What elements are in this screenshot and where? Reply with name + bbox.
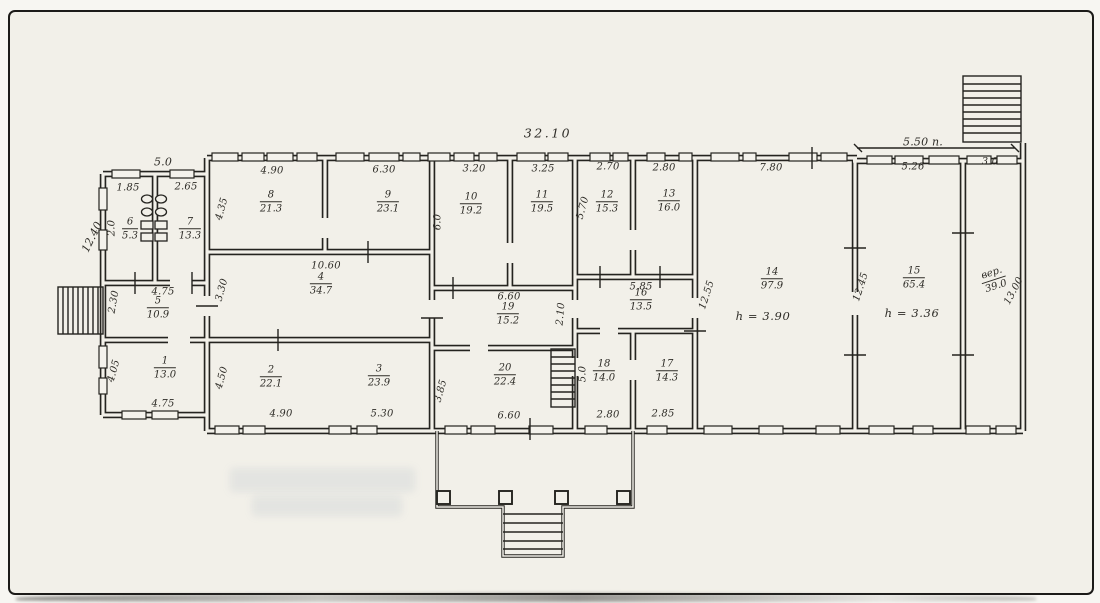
porch-wall: [437, 431, 633, 556]
window: [99, 188, 107, 210]
room-number: 19: [497, 301, 519, 314]
toilet-icon: [142, 208, 153, 216]
room-area: 21.3: [260, 202, 282, 215]
scan-shadow: [16, 593, 1036, 602]
room-number: 2: [260, 364, 282, 377]
window: [789, 153, 817, 161]
room-number: 17: [656, 358, 678, 371]
window: [711, 153, 739, 161]
room-label-11: 1119.5: [531, 189, 553, 215]
window: [369, 153, 399, 161]
room-number: 14: [761, 266, 783, 279]
room-area: 14.3: [656, 371, 678, 384]
window: [529, 426, 553, 434]
room-area: 13.0: [154, 368, 176, 381]
floor-plan-scan: 32.10 5.0 5.50 п. 1.85 2.65 4.90 6.30 3.…: [0, 0, 1100, 603]
dim-2-85: 2.85: [651, 409, 674, 420]
window: [403, 153, 420, 161]
porch-column: [555, 491, 568, 504]
dim-4-75-bottom: 4.75: [151, 399, 174, 410]
window: [152, 411, 178, 419]
dim-2-10: 2.10: [555, 302, 568, 326]
room-area: 23.1: [377, 202, 399, 215]
room-area: 5.3: [122, 229, 138, 242]
room-area: 14.0: [593, 371, 615, 384]
window: [122, 411, 146, 419]
room-label-17: 1714.3: [656, 358, 678, 384]
dim-annex-top: 5.0: [154, 156, 172, 169]
window: [913, 426, 933, 434]
window: [647, 153, 665, 161]
room-label-7: 713.3: [179, 216, 201, 242]
dim-2-70: 2.70: [596, 162, 619, 173]
sink-icon: [141, 221, 153, 229]
stairs-treads: [63, 287, 98, 334]
window: [243, 426, 265, 434]
room-14-height: h = 3.90: [736, 309, 791, 323]
window: [242, 153, 264, 161]
room-label-1: 113.0: [154, 355, 176, 381]
room-label-3: 323.9: [368, 363, 390, 389]
window: [869, 426, 894, 434]
toilet-icon: [142, 195, 153, 203]
window: [445, 426, 467, 434]
dim-1-85: 1.85: [116, 183, 139, 194]
dim-3-20: 3.20: [462, 164, 485, 175]
room-label-12: 1215.3: [596, 189, 618, 215]
dim-3-25: 3.25: [531, 164, 554, 175]
window: [704, 426, 732, 434]
room-area: 15.2: [497, 314, 519, 327]
room-label-14: 1497.9: [761, 266, 783, 292]
porch-column: [617, 491, 630, 504]
room-number: 18: [593, 358, 615, 371]
window: [867, 156, 892, 164]
window: [454, 153, 474, 161]
window: [548, 153, 568, 161]
room-number: 20: [494, 362, 516, 375]
top-right-stairs: [963, 76, 1021, 142]
walls: [103, 143, 1023, 431]
room-number: 9: [377, 189, 399, 202]
sink-icon: [155, 233, 167, 241]
dim-5-26: 5.26: [901, 162, 924, 173]
room-number: 16: [630, 287, 652, 300]
left-entrance-stairs: [58, 287, 103, 334]
dim-3-0: 3.0: [982, 157, 999, 168]
dim-5-0-vert: 5.0: [578, 366, 589, 383]
window: [297, 153, 317, 161]
porch-steps: [503, 514, 563, 549]
room-number: 5: [147, 295, 169, 308]
room-label-8: 821.3: [260, 189, 282, 215]
room-number: 11: [531, 189, 553, 202]
room-area: 15.3: [596, 202, 618, 215]
dim-2-80-bottom: 2.80: [596, 410, 619, 421]
dim-6-0: 6.0: [433, 214, 444, 231]
window: [170, 170, 194, 178]
room-number: 1: [154, 355, 176, 368]
dim-7-80: 7.80: [759, 163, 782, 174]
window: [613, 153, 628, 161]
room-area: 34.7: [310, 284, 332, 297]
window: [647, 426, 667, 434]
dim-4-90-bottom: 4.90: [269, 409, 292, 420]
room-label-6: 65.3: [122, 216, 138, 242]
room-number: 4: [310, 271, 332, 284]
room-area: 97.9: [761, 279, 783, 292]
entrance-porch: [437, 431, 633, 556]
porch-column: [499, 491, 512, 504]
window: [759, 426, 783, 434]
window: [816, 426, 840, 434]
room-15-height: h = 3.36: [885, 306, 940, 320]
window: [821, 153, 847, 161]
room-number: 6: [122, 216, 138, 229]
window: [996, 426, 1016, 434]
window: [329, 426, 351, 434]
room-number: 15: [903, 265, 925, 278]
window: [357, 426, 377, 434]
room-number: 12: [596, 189, 618, 202]
toilet-icon: [156, 208, 167, 216]
sink-icon: [141, 233, 153, 241]
window: [585, 426, 607, 434]
porch-column: [437, 491, 450, 504]
room-area: 16.0: [658, 201, 680, 214]
room-label-18: 1814.0: [593, 358, 615, 384]
room-number: 8: [260, 189, 282, 202]
room-label-15: 1565.4: [903, 265, 925, 291]
stairs-treads: [551, 357, 575, 399]
room-area: 13.5: [630, 300, 652, 313]
room-area: 13.3: [179, 229, 201, 242]
room-area: 10.9: [147, 308, 169, 321]
room-label-5: 510.9: [147, 295, 169, 321]
room-number: 3: [368, 363, 390, 376]
window: [966, 426, 990, 434]
window: [99, 346, 107, 368]
window: [212, 153, 238, 161]
window: [112, 170, 140, 178]
sink-icon: [155, 221, 167, 229]
dim-right-top: 5.50 п.: [903, 136, 943, 149]
window: [336, 153, 364, 161]
room-area: 65.4: [903, 278, 925, 291]
room-number: 7: [179, 216, 201, 229]
interior-staircase: [551, 349, 575, 407]
room-area: 22.1: [260, 377, 282, 390]
dim-6-60-bottom: 6.60: [497, 411, 520, 422]
room-number: 13: [658, 188, 680, 201]
dim-6-30: 6.30: [372, 165, 395, 176]
room-label-10: 1019.2: [460, 191, 482, 217]
room-label-20: 2022.4: [494, 362, 516, 388]
room-label-2: 222.1: [260, 364, 282, 390]
room-label-16: 1613.5: [630, 287, 652, 313]
dim-5-30: 5.30: [370, 409, 393, 420]
window: [997, 156, 1017, 164]
dim-building-top: 32.10: [524, 126, 572, 141]
room-area: 23.9: [368, 376, 390, 389]
dim-2-0: 2.0: [107, 220, 118, 237]
window: [215, 426, 239, 434]
window: [679, 153, 692, 161]
window: [929, 156, 959, 164]
room-label-9: 923.1: [377, 189, 399, 215]
bleedthrough-artifact: [230, 468, 415, 492]
room-area: 22.4: [494, 375, 516, 388]
window: [479, 153, 497, 161]
room-area: 19.2: [460, 204, 482, 217]
toilet-icon: [156, 195, 167, 203]
stairs-outline: [58, 287, 103, 334]
window: [428, 153, 450, 161]
window: [267, 153, 293, 161]
room-label-19: 1915.2: [497, 301, 519, 327]
window: [517, 153, 545, 161]
window: [743, 153, 756, 161]
dim-2-65: 2.65: [174, 182, 197, 193]
stairs-outline: [963, 76, 1021, 142]
dim-10-60: 10.60: [311, 261, 341, 272]
room-label-4: 434.7: [310, 271, 332, 297]
room-label-13: 1316.0: [658, 188, 680, 214]
room-area: 19.5: [531, 202, 553, 215]
wall-core: [103, 143, 1023, 431]
window: [471, 426, 495, 434]
bleedthrough-artifact: [252, 496, 402, 516]
room-number: 10: [460, 191, 482, 204]
dim-2-80-top: 2.80: [652, 163, 675, 174]
stairs-treads: [963, 84, 1021, 133]
window: [590, 153, 610, 161]
dim-4-90-top: 4.90: [260, 166, 283, 177]
porch-wall-core: [437, 431, 633, 556]
